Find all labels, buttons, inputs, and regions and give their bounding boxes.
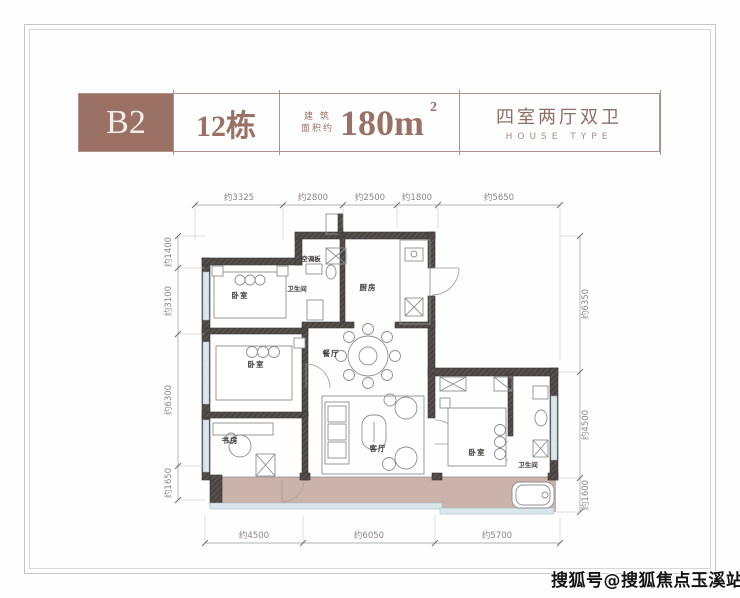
room-label-dining: 餐厅 — [322, 348, 340, 358]
bathroom2-fixtures — [533, 386, 548, 457]
dim-right-1: 约6350 — [580, 289, 591, 319]
dim-top-1: 约3325 — [224, 192, 254, 203]
dim-left-1: 约1400 — [163, 237, 174, 267]
room-label-ac-panel: 空调板 — [301, 254, 321, 263]
dim-top-2: 约2800 — [298, 192, 328, 203]
dim-left-3: 约6300 — [163, 385, 174, 415]
dim-right-2: 约4500 — [580, 410, 591, 440]
dim-top-5: 约5650 — [484, 192, 514, 203]
room-label-kitchen: 厨房 — [360, 282, 377, 292]
dim-bottom-3: 约5700 — [482, 530, 512, 541]
dim-right-3: 约1600 — [580, 480, 591, 510]
page: B2 12栋 建 筑 面积约 180m 2 四室两厅双卫 HOUSE TYPE — [0, 0, 740, 598]
living-furniture — [322, 394, 424, 474]
study-furniture — [213, 423, 275, 476]
dim-left-2: 约3100 — [163, 286, 174, 316]
bedroom-top-furniture — [212, 266, 288, 318]
bathtub — [512, 482, 554, 508]
dim-bottom-2: 约6050 — [354, 530, 384, 541]
room-label-study: 书房 — [222, 435, 239, 445]
kitchen-fixtures — [400, 240, 430, 324]
dim-top-3: 约2500 — [355, 192, 385, 203]
room-label-bedroom-master: 卧室 — [469, 447, 486, 457]
room-label-bedroom-top: 卧室 — [232, 290, 249, 300]
room-label-living: 客厅 — [369, 443, 387, 453]
dimensions-bottom: 约4500 约6050 约5700 — [202, 515, 563, 546]
dim-top-4: 约1800 — [402, 192, 432, 203]
dim-left-4: 约1650 — [163, 468, 174, 498]
floorplan-drawing: 卧室 空调板 卫生间 厨房 餐厅 卧室 书房 客厅 卧室 卫生间 — [0, 0, 740, 598]
room-label-bathroom1: 卫生间 — [287, 284, 307, 293]
dimensions-right: 约6350 约4500 约1600 — [556, 233, 591, 515]
dim-bottom-1: 约4500 — [239, 530, 269, 541]
room-label-bathroom2: 卫生间 — [518, 460, 538, 469]
dimensions-left: 约1400 约3100 约6300 约1650 — [163, 233, 205, 503]
dining-furniture — [336, 324, 401, 389]
bedroom-mid-furniture — [216, 338, 305, 400]
bathroom1-fixtures — [306, 264, 336, 320]
watermark: 搜狐号@搜狐焦点玉溪站 — [551, 566, 740, 591]
room-label-bedroom-mid: 卧室 — [248, 359, 265, 369]
